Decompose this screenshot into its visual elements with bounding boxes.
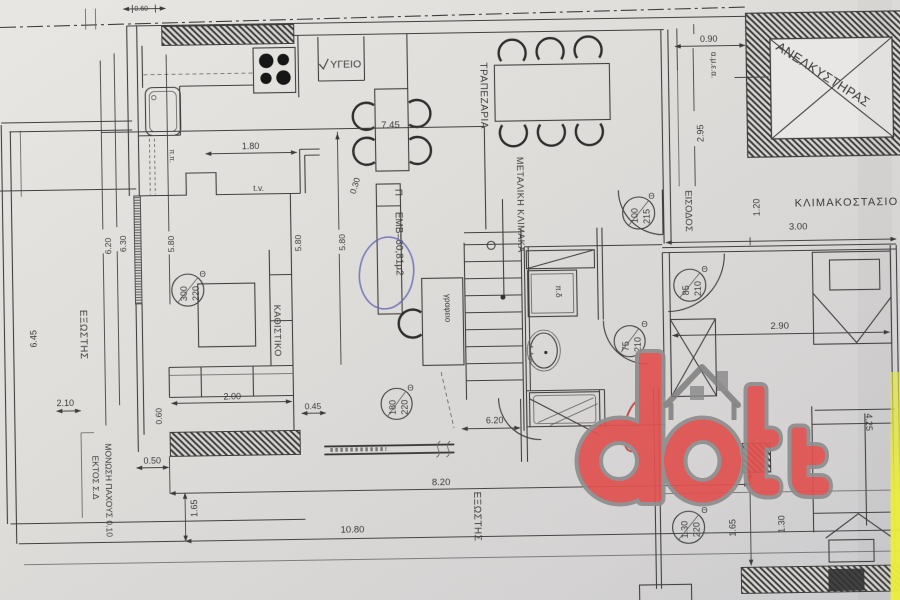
svg-text:ΕΞΩΣΤΗΣ: ΕΞΩΣΤΗΣ xyxy=(471,492,483,542)
svg-text:Θ: Θ xyxy=(641,320,647,329)
svg-text:1.65: 1.65 xyxy=(727,519,737,537)
svg-text:π.π.: π.π. xyxy=(168,149,175,163)
svg-text:ΥΓΕΙΟ: ΥΓΕΙΟ xyxy=(330,58,361,70)
svg-text:0.90: 0.90 xyxy=(700,34,718,44)
svg-text:6.45: 6.45 xyxy=(28,330,38,348)
svg-text:6.30: 6.30 xyxy=(118,235,128,252)
svg-text:1.80: 1.80 xyxy=(242,141,260,151)
svg-text:5.80: 5.80 xyxy=(337,234,347,251)
svg-text:0.60: 0.60 xyxy=(154,408,164,425)
svg-text:1.30: 1.30 xyxy=(776,515,786,533)
svg-text:1.20: 1.20 xyxy=(751,199,761,217)
svg-text:5.80: 5.80 xyxy=(166,235,176,252)
svg-text:Θ: Θ xyxy=(701,506,707,515)
svg-text:ΚΑΘΙΣΤΙΚΟ: ΚΑΘΙΣΤΙΚΟ xyxy=(272,305,283,357)
svg-text:ΕΜΒ=60,81μ2: ΕΜΒ=60,81μ2 xyxy=(393,212,405,276)
svg-text:π.δ: π.δ xyxy=(554,285,563,298)
svg-text:2.95: 2.95 xyxy=(695,124,705,142)
svg-text:α.μ.ε.α.: α.μ.ε.α. xyxy=(709,52,718,78)
svg-text:220: 220 xyxy=(400,400,410,415)
svg-text:0.60: 0.60 xyxy=(134,6,148,13)
svg-text:220: 220 xyxy=(692,522,702,537)
svg-text:0.50: 0.50 xyxy=(143,456,161,466)
svg-text:220: 220 xyxy=(191,286,201,301)
svg-text:3.00: 3.00 xyxy=(789,221,808,232)
svg-text:85: 85 xyxy=(681,285,691,295)
svg-text:10.80: 10.80 xyxy=(341,524,365,535)
svg-text:2.10: 2.10 xyxy=(56,398,74,408)
svg-text:0.45: 0.45 xyxy=(305,401,322,411)
svg-text:8.20: 8.20 xyxy=(432,477,451,488)
svg-text:1.65: 1.65 xyxy=(189,499,199,517)
svg-text:Θ: Θ xyxy=(199,270,205,279)
svg-text:ΕΚΤΟΣ Σ.Δ: ΕΚΤΟΣ Σ.Δ xyxy=(90,456,101,500)
svg-text:1.30: 1.30 xyxy=(679,521,689,539)
svg-text:6.20: 6.20 xyxy=(486,415,504,425)
svg-text:215: 215 xyxy=(642,209,652,224)
svg-text:5.80: 5.80 xyxy=(293,234,303,251)
svg-text:γραφειο: γραφειο xyxy=(443,294,452,323)
svg-text:ΕΞΩΣΤΗΣ: ΕΞΩΣΤΗΣ xyxy=(77,310,89,360)
svg-text:180: 180 xyxy=(388,400,398,415)
svg-text:7.45: 7.45 xyxy=(381,120,400,131)
svg-text:Π: Π xyxy=(392,189,403,196)
svg-text:75: 75 xyxy=(621,341,631,351)
svg-text:100: 100 xyxy=(630,208,640,223)
svg-text:Θ: Θ xyxy=(701,265,707,274)
svg-text:210: 210 xyxy=(693,281,703,296)
svg-text:300: 300 xyxy=(179,286,189,301)
svg-text:ΜΟΝΩΣΗ ΠΑΧΟΥΣ 0.10: ΜΟΝΩΣΗ ΠΑΧΟΥΣ 0.10 xyxy=(103,443,114,537)
svg-text:t.v.: t.v. xyxy=(253,183,264,193)
svg-text:Θ: Θ xyxy=(407,384,413,393)
svg-text:ΕΙΣΟΔΟΣ: ΕΙΣΟΔΟΣ xyxy=(682,190,694,232)
svg-text:6.20: 6.20 xyxy=(103,237,113,254)
svg-text:ΤΡΑΠΕΖΑΡΙΑ: ΤΡΑΠΕΖΑΡΙΑ xyxy=(477,62,489,129)
svg-text:2.00: 2.00 xyxy=(223,391,241,401)
svg-text:Θ: Θ xyxy=(648,192,654,201)
svg-text:2.90: 2.90 xyxy=(770,321,789,332)
